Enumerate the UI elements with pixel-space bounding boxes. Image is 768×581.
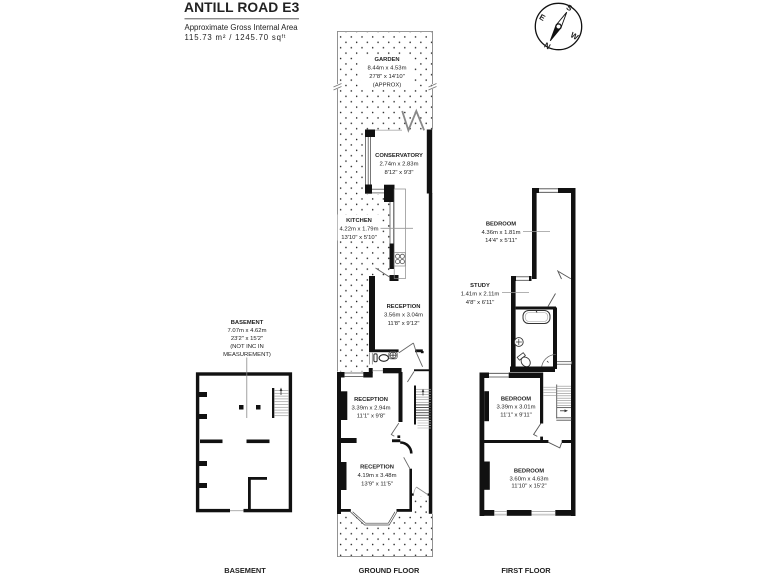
svg-text:13'10" x 5'10": 13'10" x 5'10" <box>341 235 377 241</box>
svg-text:13'9" x 11'5": 13'9" x 11'5" <box>361 482 393 488</box>
svg-text:11'1" x 9'11": 11'1" x 9'11" <box>500 413 531 419</box>
svg-text:1.41m x 2.11m: 1.41m x 2.11m <box>461 292 500 298</box>
svg-text:BASEMENT: BASEMENT <box>224 566 266 575</box>
svg-text:115.73 m² / 1245.70 sqft: 115.73 m² / 1245.70 sqft <box>185 33 287 42</box>
svg-text:BEDROOM: BEDROOM <box>501 397 531 403</box>
svg-text:Approximate Gross Internal Are: Approximate Gross Internal Area <box>185 23 299 32</box>
svg-text:GROUND FLOOR: GROUND FLOOR <box>359 566 420 575</box>
svg-text:23'2" x 15'2": 23'2" x 15'2" <box>231 336 263 342</box>
svg-text:RECEPTION: RECEPTION <box>360 465 394 471</box>
svg-text:GARDEN: GARDEN <box>374 57 399 63</box>
svg-text:FIRST FLOOR: FIRST FLOOR <box>501 566 551 575</box>
svg-text:RECEPTION: RECEPTION <box>354 397 388 403</box>
svg-text:BEDROOM: BEDROOM <box>514 469 544 475</box>
svg-text:27'8" x 14'10": 27'8" x 14'10" <box>369 74 405 80</box>
svg-text:3.39m x 2.94m: 3.39m x 2.94m <box>352 406 391 412</box>
svg-text:4.22m x 1.79m: 4.22m x 1.79m <box>340 227 379 233</box>
svg-text:(APPROX): (APPROX) <box>373 83 402 89</box>
svg-text:CONSERVATORY: CONSERVATORY <box>375 153 423 159</box>
svg-text:3.39m x 3.01m: 3.39m x 3.01m <box>497 405 536 411</box>
svg-text:11'10" x 15'2": 11'10" x 15'2" <box>511 484 546 490</box>
svg-text:8'12" x 9'3": 8'12" x 9'3" <box>384 170 413 176</box>
svg-text:BEDROOM: BEDROOM <box>486 222 516 228</box>
svg-text:STUDY: STUDY <box>470 283 490 289</box>
svg-text:RECEPTION: RECEPTION <box>387 304 421 310</box>
svg-text:4'8" x 6'11": 4'8" x 6'11" <box>466 300 495 306</box>
svg-text:14'4" x 5'11": 14'4" x 5'11" <box>485 238 517 244</box>
svg-text:11'8" x 9'12": 11'8" x 9'12" <box>388 321 420 327</box>
svg-text:BASEMENT: BASEMENT <box>231 320 264 326</box>
svg-text:7.07m x 4.62m: 7.07m x 4.62m <box>228 328 267 334</box>
svg-text:2.74m x 2.83m: 2.74m x 2.83m <box>380 162 419 168</box>
svg-text:3.56m x 3.04m: 3.56m x 3.04m <box>384 313 423 319</box>
svg-text:8.44m x 4.53m: 8.44m x 4.53m <box>368 66 407 72</box>
svg-text:3.60m x 4.63m: 3.60m x 4.63m <box>510 477 549 483</box>
svg-text:KITCHEN: KITCHEN <box>346 218 372 224</box>
svg-text:(NOT INC IN: (NOT INC IN <box>230 344 264 350</box>
svg-text:11'1" x 9'8": 11'1" x 9'8" <box>357 413 386 419</box>
svg-text:4.19m x 3.48m: 4.19m x 3.48m <box>358 473 397 479</box>
svg-text:4.36m x 1.81m: 4.36m x 1.81m <box>482 230 521 236</box>
svg-text:MEASUREMENT): MEASUREMENT) <box>223 352 271 358</box>
svg-text:ANTILL ROAD E3: ANTILL ROAD E3 <box>184 0 300 15</box>
